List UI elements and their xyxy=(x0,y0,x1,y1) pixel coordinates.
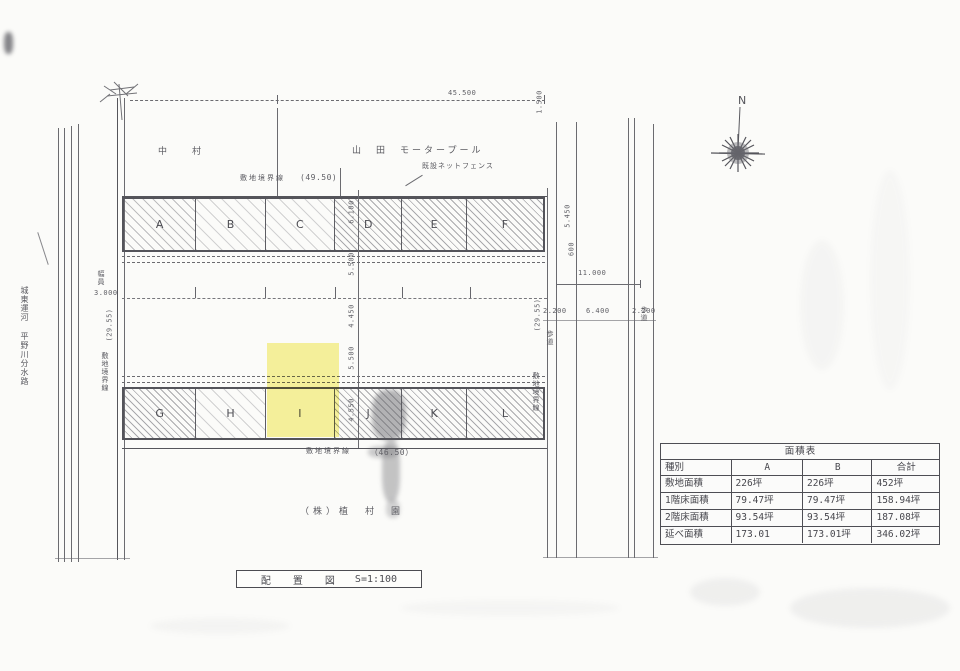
col-header-b: B xyxy=(802,460,872,475)
plot-cell-f: F xyxy=(467,199,543,250)
dim-right-upper-1: 600 xyxy=(569,242,576,256)
table-row-floor1: 1階床面積 79.47坪 79.47坪 158.94坪 xyxy=(661,492,939,509)
dimension-tick xyxy=(640,280,641,288)
dim-right-total: 11.000 xyxy=(578,270,606,277)
fence-leader-line xyxy=(405,175,422,186)
scan-noise xyxy=(150,618,290,634)
sidewalk-left-label: 歩道 xyxy=(546,330,553,346)
left-boundary-line xyxy=(124,98,125,560)
value-total: 187.08坪 xyxy=(871,510,939,526)
area-table: 面積表 種別 A B 合計 敷地面積 226坪 226坪 452坪 1階床面積 … xyxy=(660,443,940,545)
road-edge-line xyxy=(55,558,130,559)
plot-cell-a: A xyxy=(124,199,196,250)
plot-cell-c: C xyxy=(266,199,335,250)
plot-cell-k: K xyxy=(402,389,466,438)
table-row-total-area: 延べ面積 173.01 173.01坪 346.02坪 xyxy=(661,526,939,543)
value-a: 226坪 xyxy=(731,476,802,492)
top-boundary-dim: (49.50) xyxy=(300,174,337,182)
bottom-boundary-label: 敷地境界線 xyxy=(306,448,351,455)
waterway-line xyxy=(78,124,79,562)
dim-right-length: (29.55) xyxy=(535,298,542,331)
neighbor-right-label: 山 田 モータープール xyxy=(352,147,483,156)
scan-noise xyxy=(800,240,844,370)
dim-top-right: 1.500 xyxy=(537,90,544,114)
plot-cell-b: B xyxy=(196,199,265,250)
dim-right-part-0: 2.200 xyxy=(543,308,567,315)
fence-post-tick xyxy=(470,287,471,298)
bottom-boundary-dim: （46.50） xyxy=(370,449,414,457)
road-line xyxy=(653,124,654,558)
plot-cell-g: G xyxy=(124,389,196,438)
waterway-line xyxy=(71,126,72,562)
owner-label: （株）植 村 園 xyxy=(300,508,404,517)
scan-noise xyxy=(790,588,950,628)
north-letter: N xyxy=(738,94,746,107)
right-boundary-line xyxy=(547,188,548,558)
setback-dashed-line xyxy=(122,256,545,257)
col-header-total: 合計 xyxy=(871,460,939,475)
value-b: 173.01坪 xyxy=(802,527,872,543)
value-a: 79.47坪 xyxy=(731,493,802,509)
plot-label-j: J xyxy=(367,407,370,420)
top-boundary-label: 敷地境界線 xyxy=(240,175,285,182)
scan-noise xyxy=(690,578,760,606)
road-edge-line xyxy=(543,557,658,558)
fence-note-label: 既設ネットフェンス xyxy=(422,163,494,170)
value-b: 79.47坪 xyxy=(802,493,872,509)
dim-center-1: 5.500 xyxy=(349,252,356,276)
dim-center-0: 6.100 xyxy=(349,200,356,224)
value-b: 226坪 xyxy=(802,476,872,492)
top-dimension-line xyxy=(130,100,545,101)
neighbor-left-label: 中 村 xyxy=(158,148,209,157)
area-table-title: 面積表 xyxy=(781,444,820,459)
width-value: 3.000 xyxy=(94,290,118,297)
building-block-top: A B C D E F xyxy=(122,197,545,252)
area-table-title-row: 面積表 xyxy=(661,444,939,459)
drawing-title: 配 置 図 xyxy=(261,572,341,587)
value-a: 93.54坪 xyxy=(731,510,802,526)
road-line xyxy=(628,118,629,558)
right-dim-line xyxy=(556,284,640,285)
fence-post-tick xyxy=(335,287,336,298)
dim-top-width: 45.500 xyxy=(448,90,476,97)
row-label: 敷地面積 xyxy=(661,476,731,492)
drawing-scale: S=1:100 xyxy=(355,574,397,585)
row-label: 2階床面積 xyxy=(661,510,731,526)
waterway-river-label: 平野川分水路 xyxy=(20,332,28,386)
table-row-site-area: 敷地面積 226坪 226坪 452坪 xyxy=(661,475,939,492)
boundary-leader-line xyxy=(340,168,341,196)
dim-center-2: 4.450 xyxy=(349,304,356,328)
north-compass-icon: N xyxy=(705,90,775,178)
setback-dashed-line xyxy=(122,262,545,263)
dimension-tick xyxy=(544,95,545,104)
scan-noise xyxy=(870,170,910,390)
plot-label-b: B xyxy=(227,218,235,231)
value-a: 173.01 xyxy=(731,527,802,543)
dim-right-upper-0: 5.450 xyxy=(565,204,572,228)
plot-label-a: A xyxy=(156,218,164,231)
left-boundary-line xyxy=(117,98,118,560)
right-boundary-label: 敷地境界線 xyxy=(532,372,539,412)
road-line xyxy=(634,118,635,558)
plot-label-f: F xyxy=(502,218,508,231)
waterway-line xyxy=(58,128,59,562)
width-label: 幅員 xyxy=(97,270,104,286)
plot-label-k: K xyxy=(430,407,437,420)
area-table-header-row: 種別 A B 合計 xyxy=(661,459,939,475)
plot-label-d: D xyxy=(364,218,372,231)
plot-cell-e: E xyxy=(402,199,466,250)
value-b: 93.54坪 xyxy=(802,510,872,526)
fence-post-tick xyxy=(265,287,266,298)
utility-pole-icon xyxy=(98,80,148,122)
table-row-floor2: 2階床面積 93.54坪 93.54坪 187.08坪 xyxy=(661,509,939,526)
plot-cell-h: H xyxy=(196,389,265,438)
highlight-plot-i xyxy=(267,343,339,437)
dim-right-part-1: 6.400 xyxy=(586,308,610,315)
scan-mark xyxy=(4,32,13,54)
plot-label-g: G xyxy=(155,407,164,420)
waterway-canal-label: 城東運河 xyxy=(20,286,28,322)
value-total: 158.94坪 xyxy=(871,493,939,509)
col-header-a: A xyxy=(731,460,802,475)
left-boundary-label: 敷地境界線 xyxy=(101,352,108,392)
scanned-site-plan-page: 45.500 1.500 中 村 山 田 モータープール 既設ネットフェンス 敷… xyxy=(0,0,960,671)
sidewalk-line xyxy=(556,122,557,558)
row-label: 1階床面積 xyxy=(661,493,731,509)
scan-noise xyxy=(400,600,620,616)
plot-label-e: E xyxy=(431,218,438,231)
scan-smudge xyxy=(372,390,406,440)
plot-label-l: L xyxy=(502,407,508,420)
sidewalk-line xyxy=(576,122,577,558)
col-header-kind: 種別 xyxy=(661,460,731,475)
dim-left-length: (29.55) xyxy=(107,308,114,341)
fence-post-tick xyxy=(195,287,196,298)
plot-cell-d: D xyxy=(335,199,402,250)
mid-fence-line xyxy=(122,298,547,299)
fence-post-tick xyxy=(402,287,403,298)
value-total: 346.02坪 xyxy=(871,527,939,543)
waterway-line xyxy=(64,128,65,562)
dim-center-3: 5.500 xyxy=(349,346,356,370)
plot-label-c: C xyxy=(296,218,304,231)
sidewalk-right-label: 歩道 xyxy=(640,306,647,322)
drawing-title-box: 配 置 図 S=1:100 xyxy=(236,570,422,588)
plot-label-h: H xyxy=(226,407,234,420)
value-total: 452坪 xyxy=(871,476,939,492)
dimension-tick xyxy=(556,280,557,288)
center-line xyxy=(277,108,278,196)
row-label: 延べ面積 xyxy=(661,527,731,543)
dimension-tick xyxy=(277,95,278,104)
flow-arrow-line xyxy=(37,232,48,265)
